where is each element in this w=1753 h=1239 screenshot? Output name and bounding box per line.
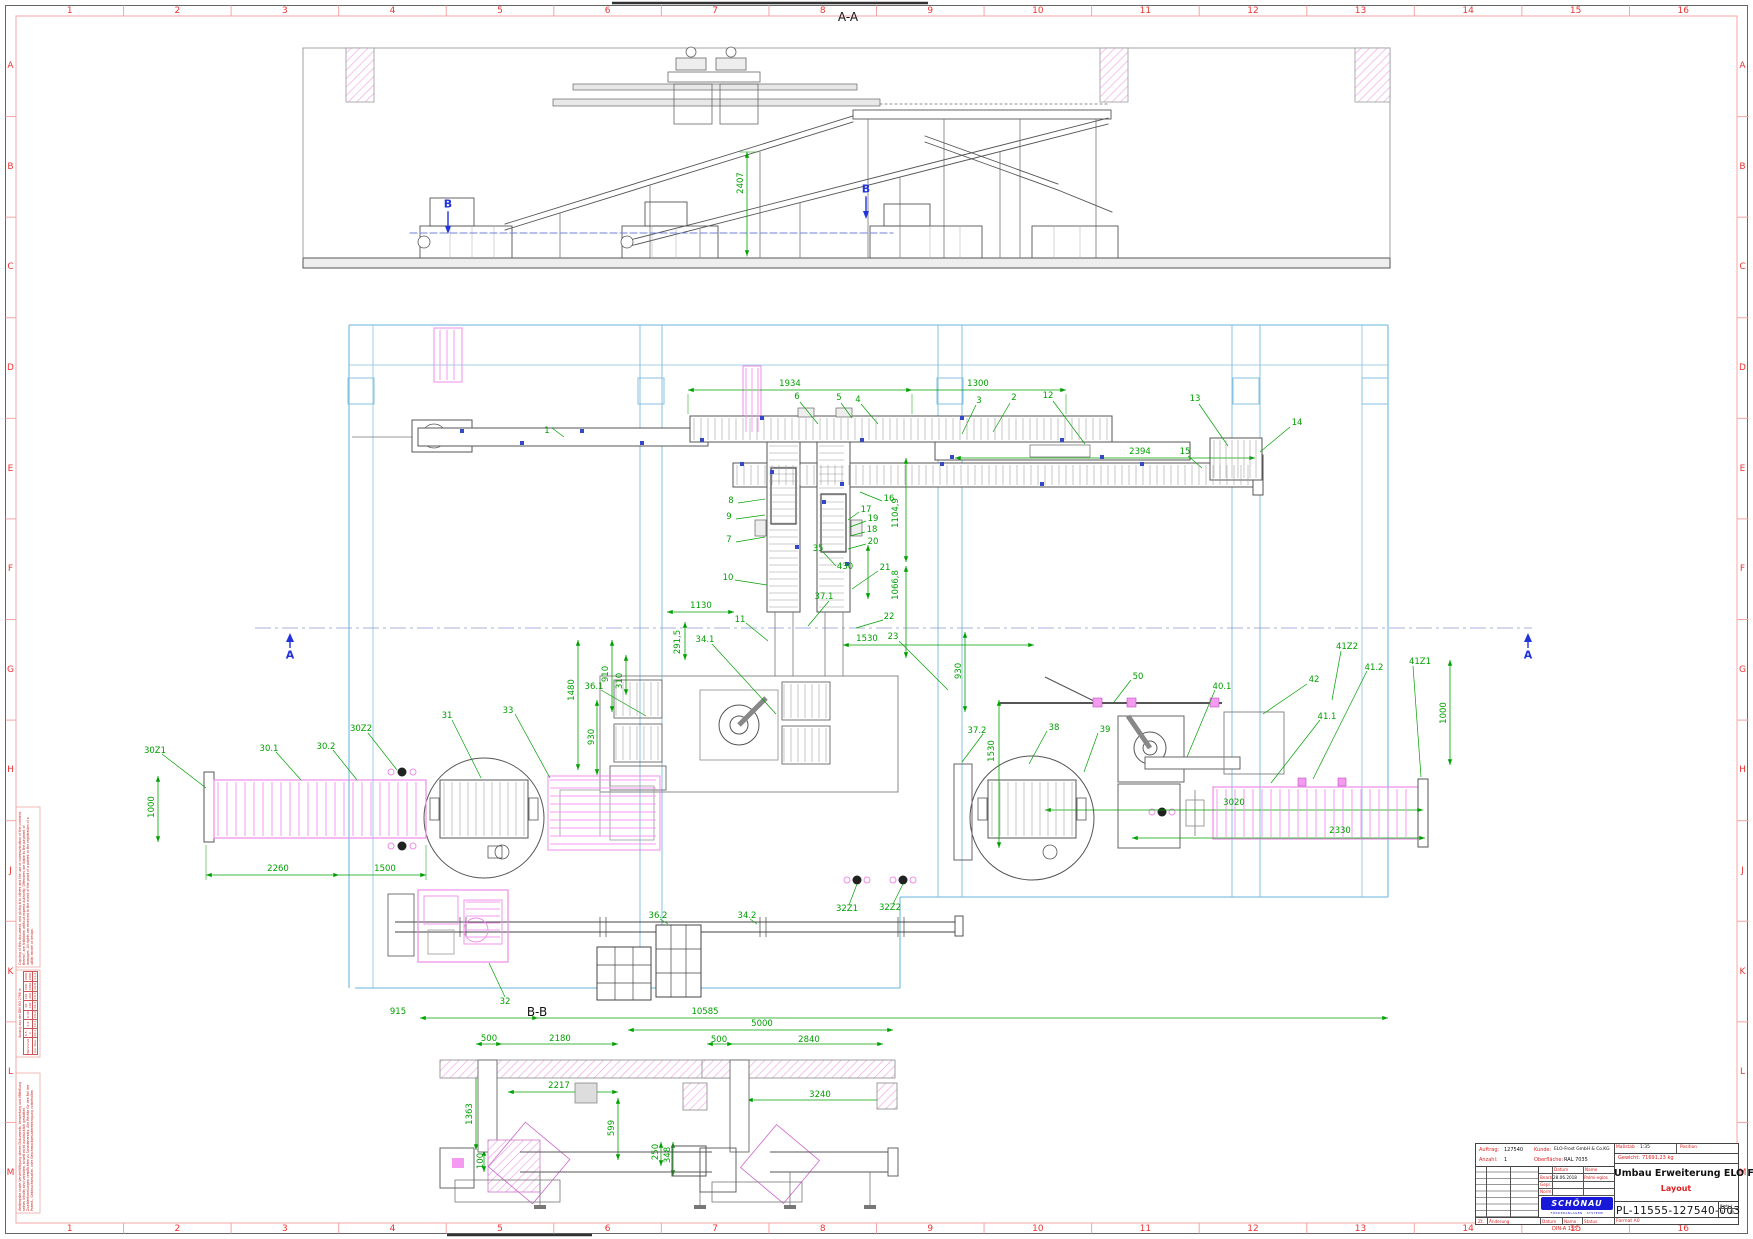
auftrag-value: 127540: [1504, 1147, 1523, 1153]
company-logo: SCHÖNAU: [1541, 1197, 1613, 1210]
tolerance-cell: ±0,3: [32, 1001, 37, 1010]
tolerance-table-grid: Nennmaß0,5-33-66-3030-120120-400400-1000…: [23, 971, 38, 1055]
massstab-value: 1:35: [1640, 1145, 1650, 1150]
tolerance-table-title: Auszug aus der DIN ISO 2768 m: [18, 971, 22, 1055]
name-col-label: Name: [1585, 1167, 1597, 1172]
gepr-label: Gepr.: [1540, 1182, 1551, 1187]
gewicht-label: Gewicht:: [1618, 1155, 1640, 1161]
cad-drawing-sheet: A-AB-BBBAA240719341300654321213141239415…: [0, 0, 1753, 1239]
bearb-name: Palmi-eglos: [1584, 1175, 1608, 1180]
format-label: Format A0: [1616, 1219, 1640, 1224]
drawing-subtitle: Layout: [1614, 1184, 1738, 1193]
anzahl-label: Anzahl:: [1479, 1157, 1498, 1163]
norm-label: Norm: [1540, 1189, 1551, 1194]
footer-aenderung: Änderung: [1489, 1219, 1509, 1224]
footer-name: Name: [1564, 1219, 1576, 1224]
tolerance-cell: ±1,2: [32, 971, 37, 982]
tolerance-cell: ±0,1: [32, 1029, 37, 1038]
plan-view-drawing: [158, 325, 1532, 1176]
massstab-label: Maßstab: [1616, 1145, 1635, 1150]
company-logo-subtitle: FÖRDERANLAGEN · SYSTEME: [1541, 1211, 1613, 1215]
tolerance-cell: ±0,2: [32, 1010, 37, 1019]
blatt-unit: Bl.: [1730, 1210, 1735, 1215]
tolerance-cell: ±0,8: [32, 982, 37, 992]
tolerance-cell: 3-6: [23, 1019, 32, 1028]
auftrag-label: Auftrag:: [1479, 1147, 1499, 1153]
gewicht-value: 71691,23 kg: [1642, 1155, 1674, 1161]
footer-datum: Datum: [1542, 1219, 1556, 1224]
tolerance-cell: 0,5-3: [23, 1029, 32, 1038]
title-block: Auftrag: 127540 Kunde: ELO-Frost GmbH & …: [1475, 1143, 1739, 1225]
tolerance-cell: 120-400: [23, 991, 32, 1000]
footer-zt: Zt.: [1478, 1219, 1484, 1224]
tolerance-cell: ±0,5: [32, 991, 37, 1000]
kunde-value: ELO-Frost GmbH & Co.KG: [1554, 1147, 1610, 1152]
section-bb-details: [440, 1060, 898, 1209]
footer-status: Status: [1584, 1219, 1597, 1224]
anzahl-value: 1: [1504, 1157, 1507, 1163]
tolerance-row-label: zul. Abw.: [32, 1038, 37, 1055]
blatt-count: 1: [1721, 1210, 1724, 1215]
tolerance-row-label: Nennmaß: [23, 1038, 32, 1055]
drawing-title: Umbau Erweiterung ELO Frost: [1614, 1168, 1738, 1179]
tolerance-table: Auszug aus der DIN ISO 2768 m Nennmaß0,5…: [18, 971, 39, 1055]
stopper-wheels: [388, 768, 1175, 885]
tolerance-cell: 6-30: [23, 1010, 32, 1019]
kunde-label: Kunde:: [1534, 1147, 1551, 1153]
tolerance-cell: ±0,1: [32, 1019, 37, 1028]
din-note: DIN-A 155: [1552, 1226, 1577, 1232]
copyright-note-de: Weitergabe sowie Vervielfältigung dieses…: [18, 1075, 39, 1211]
position-label: Position: [1680, 1145, 1697, 1150]
drawing-canvas: [0, 0, 1753, 1239]
tolerance-cell: 1000-2000: [23, 971, 32, 982]
blatt-label: Blatt 1: [1720, 1203, 1733, 1208]
copyright-note-en: Copying of this document, and giving it …: [18, 809, 39, 965]
datum-col-label: Datum: [1554, 1167, 1568, 1172]
oberflaeche-value: RAL 7035: [1564, 1157, 1588, 1163]
sheet-frame: [6, 3, 1749, 1235]
section-aa-drawing: [303, 47, 1390, 268]
oberflaeche-label: Oberfläche:: [1534, 1157, 1563, 1163]
tolerance-cell: 400-1000: [23, 982, 32, 992]
bearb-datum: 28.06.2018: [1553, 1175, 1577, 1180]
tolerance-cell: 30-120: [23, 1001, 32, 1010]
